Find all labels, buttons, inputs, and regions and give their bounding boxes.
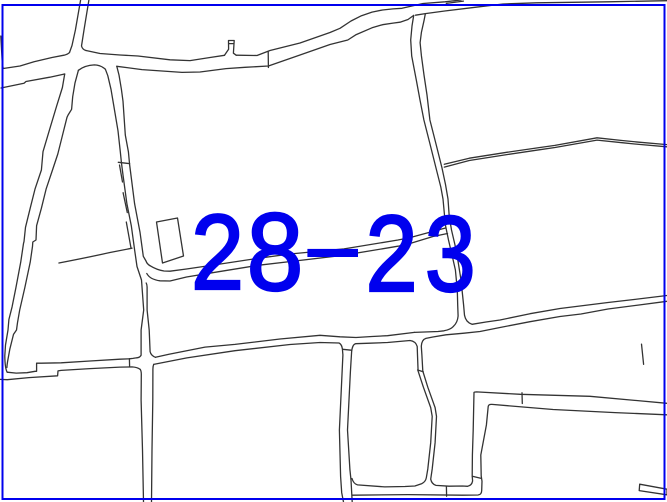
svg-text:3: 3 — [425, 195, 476, 314]
svg-text:2: 2 — [365, 193, 417, 315]
svg-text:2: 2 — [191, 192, 244, 312]
svg-text:8: 8 — [247, 192, 304, 314]
